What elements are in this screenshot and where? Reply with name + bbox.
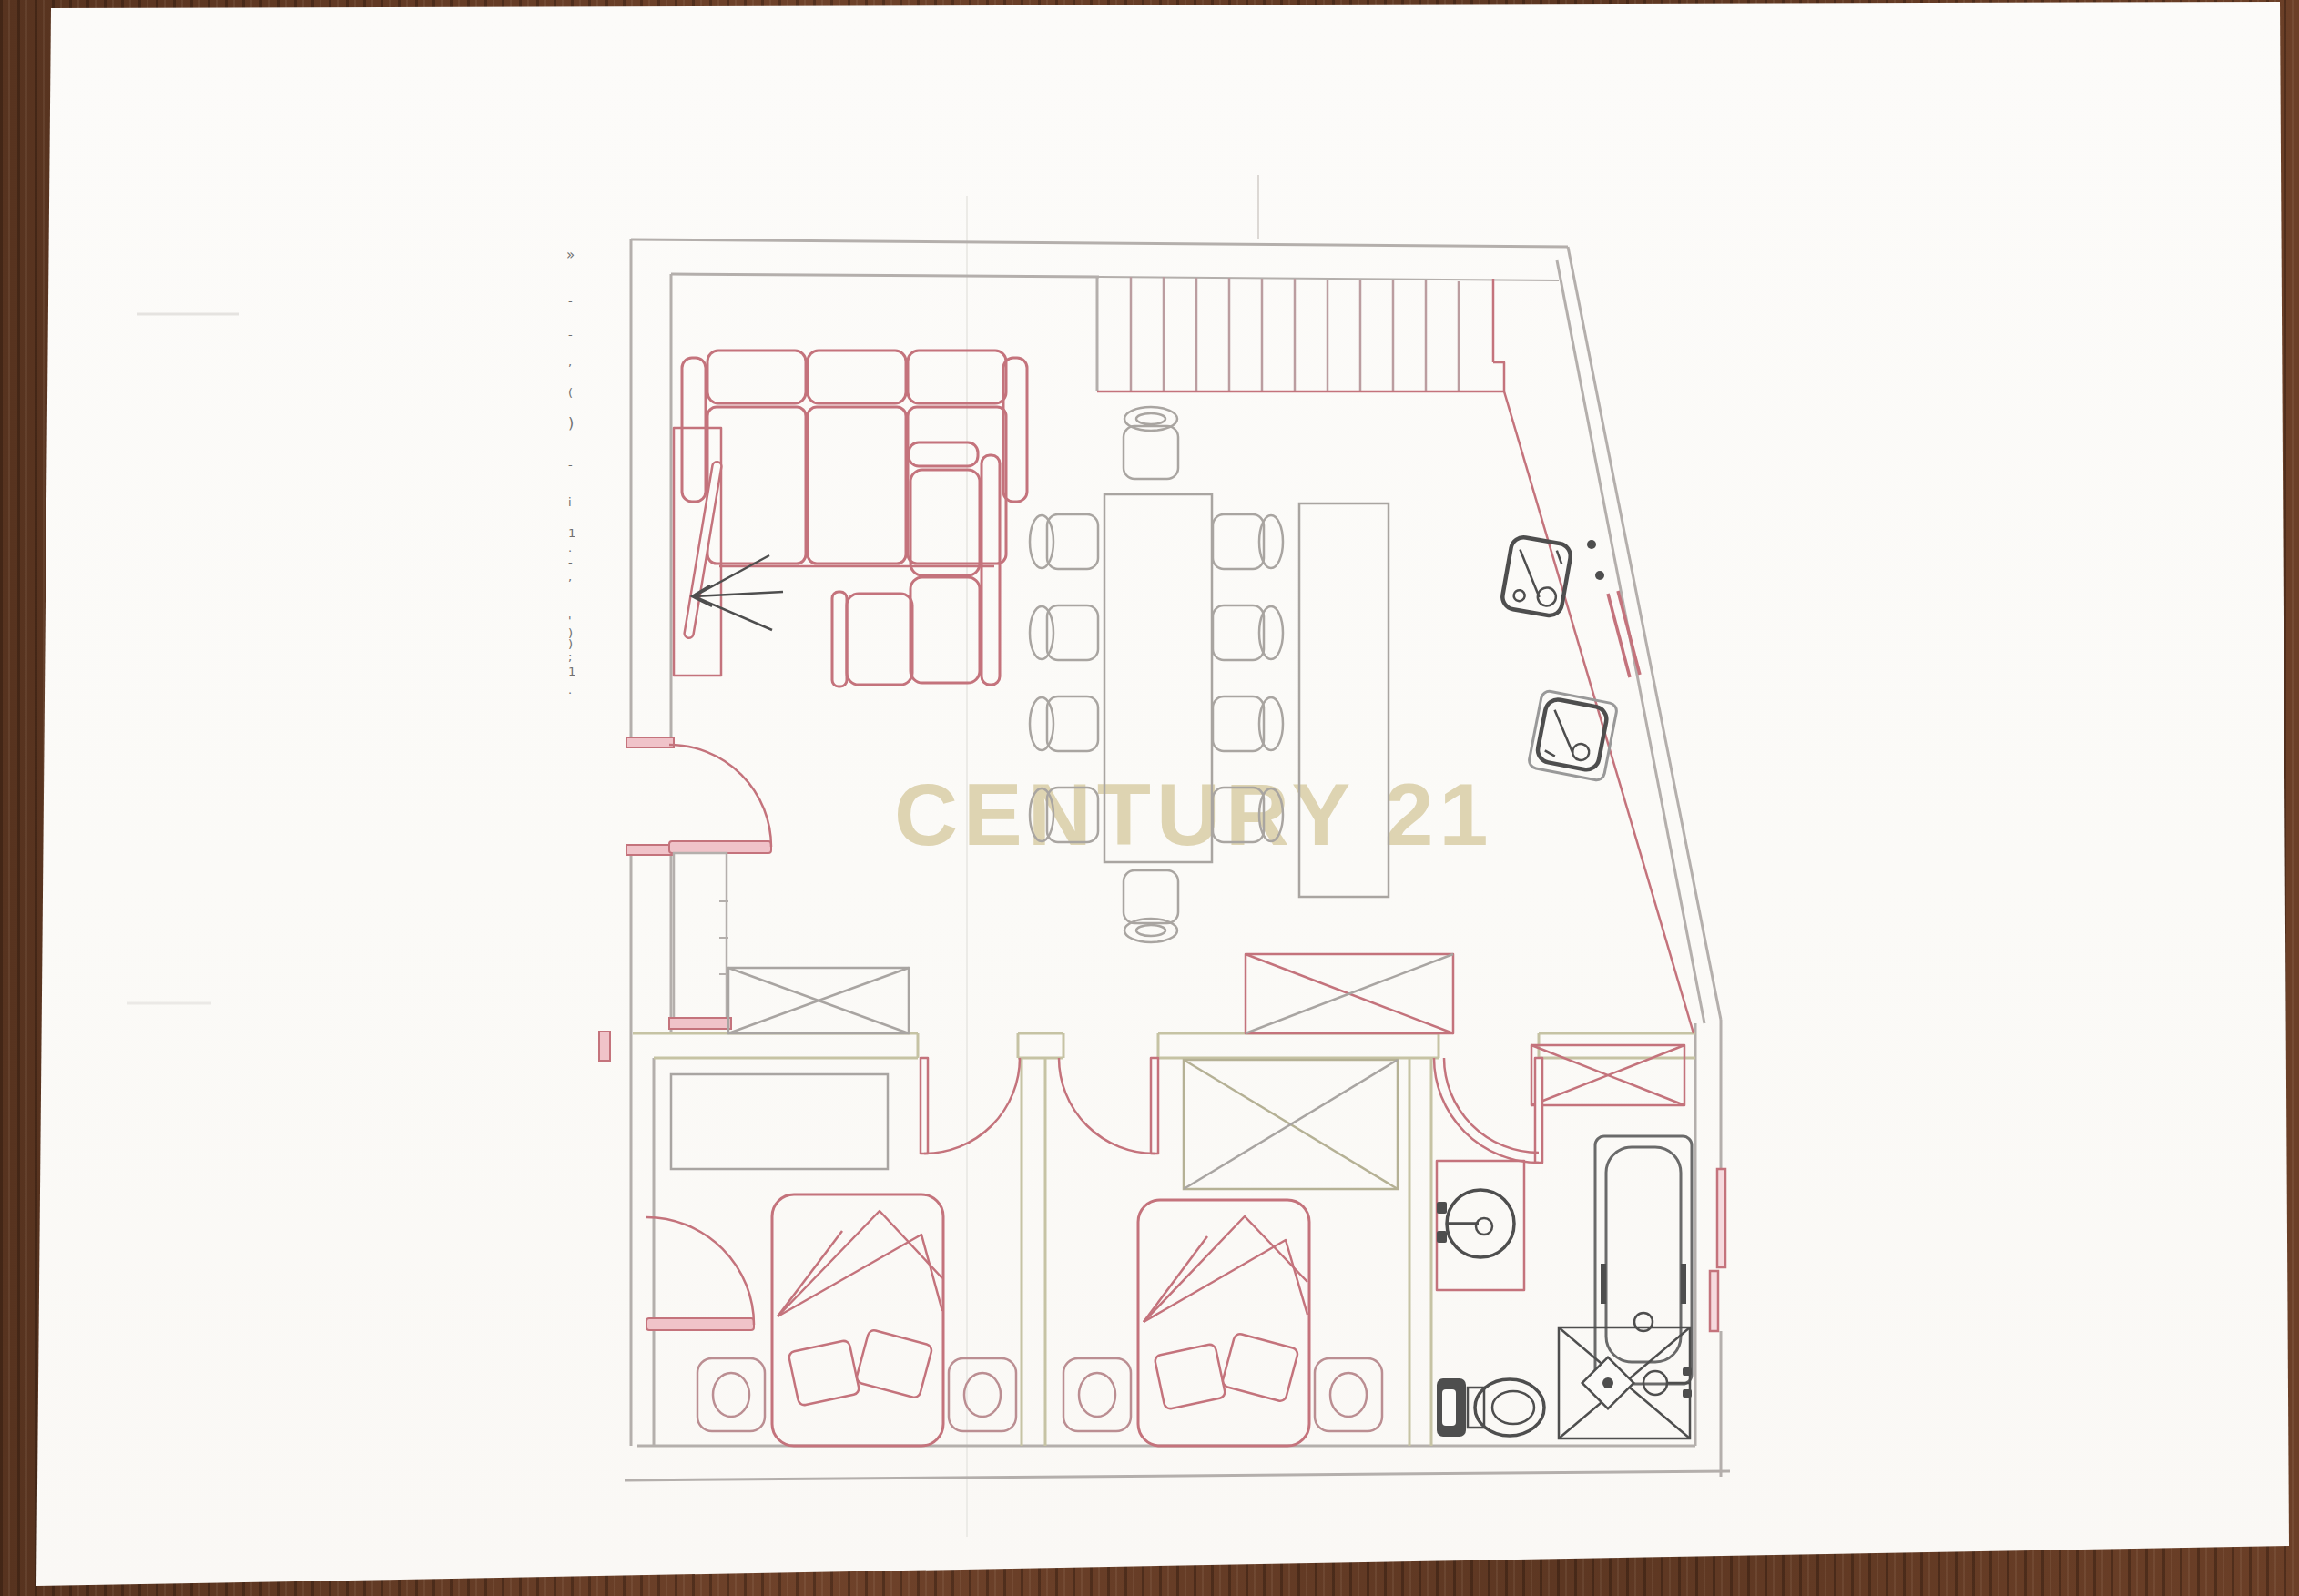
- margin-mark: -: [568, 328, 573, 341]
- bedroom-1-side-door: [646, 1217, 754, 1330]
- vanity-sink: [1437, 1161, 1524, 1290]
- kitchen-sink-2: [1528, 690, 1618, 781]
- margin-mark: (: [568, 386, 573, 400]
- bedroom-2-wardrobe: [1184, 1060, 1398, 1189]
- shower: [1559, 1327, 1692, 1438]
- margin-mark: ,: [568, 355, 572, 369]
- margin-mark: ;: [568, 650, 572, 664]
- three-seat-sofa: [682, 351, 1027, 566]
- margin-mark: -: [568, 458, 573, 472]
- nightstand-with-lamp: [1063, 1358, 1131, 1431]
- hall-closet: [669, 853, 731, 1029]
- margin-mark: ': [568, 614, 572, 627]
- hall-wardrobe: [728, 968, 909, 1033]
- counter-dot: [1595, 571, 1604, 580]
- margin-mark: ,: [568, 570, 572, 584]
- bedroom-1-door: [921, 1058, 1020, 1154]
- bathroom-door: [1434, 1058, 1542, 1163]
- floor-plan-drawing: » - - , ( ) - i 1 . - , ' ) ) ; 1 . CENT…: [0, 0, 2299, 1596]
- margin-mark: »: [566, 247, 575, 263]
- bathroom-window: [1710, 1169, 1725, 1331]
- counter-dot: [1587, 540, 1596, 549]
- bathroom-cabinet: [1531, 1045, 1684, 1105]
- bathtub: [1595, 1136, 1692, 1384]
- margin-mark: ): [568, 637, 573, 651]
- margin-marks: » - - , ( ) - i 1 . - , ' ) ) ; 1 .: [566, 247, 575, 696]
- margin-mark: .: [568, 683, 572, 696]
- double-bed-1: [772, 1194, 943, 1446]
- toilet: [1437, 1378, 1544, 1437]
- kitchen-sink: [1500, 535, 1572, 617]
- nightstand-with-lamp: [697, 1358, 765, 1431]
- margin-mark: ): [568, 414, 574, 432]
- bedroom-2-door: [1059, 1058, 1158, 1154]
- staircase: [1097, 277, 1694, 1033]
- margin-mark: .: [568, 541, 572, 554]
- nightstand-with-lamp: [949, 1358, 1016, 1431]
- wall-end-cap: [599, 1032, 610, 1061]
- bedroom-2-outer-wardrobe: [1246, 954, 1453, 1033]
- margin-mark: 1: [568, 665, 575, 678]
- margin-mark: -: [568, 294, 573, 308]
- margin-mark: 1: [568, 526, 575, 540]
- century21-watermark: CENTURY 21: [894, 765, 1493, 864]
- entry-door: [626, 737, 771, 855]
- margin-mark: -: [568, 555, 573, 569]
- bedroom-1-dresser: [671, 1074, 888, 1169]
- margin-mark: i: [568, 495, 572, 509]
- nightstand-with-lamp: [1315, 1358, 1382, 1431]
- double-bed-2: [1138, 1200, 1309, 1446]
- photo-of-floor-plan: { "watermark": { "text": "CENTURY 21" },…: [0, 0, 2299, 1596]
